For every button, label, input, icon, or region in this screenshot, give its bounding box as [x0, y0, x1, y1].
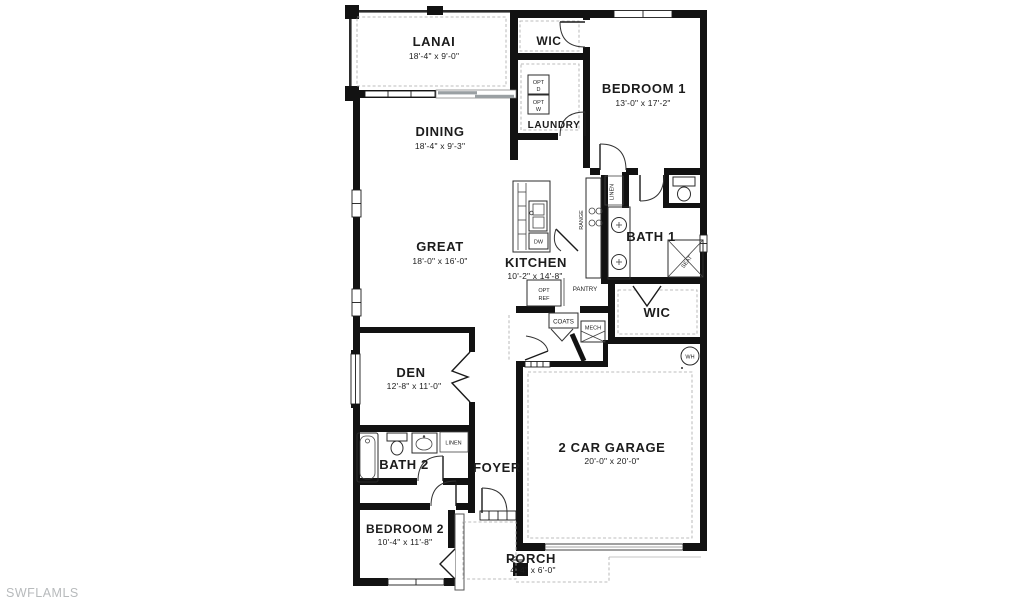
wall-segment: [516, 367, 523, 543]
room-label-lanai: LANAI: [413, 34, 456, 49]
wall-segment: [456, 503, 468, 510]
wall-segment: [448, 510, 455, 548]
coats-bifold-door: [551, 329, 573, 341]
wall-segment: [700, 10, 707, 235]
room-dims-lanai: 18'-4" x 9'-0": [409, 51, 459, 61]
room-label-bedroom2: BEDROOM 2: [366, 522, 444, 536]
wall-segment: [353, 327, 475, 333]
room-dims-bedroom2: 10'-4" x 11'-8": [378, 537, 433, 547]
garage-entry-door: [525, 336, 548, 360]
room-label-bedroom1: BEDROOM 1: [602, 81, 686, 96]
mech-box: [581, 321, 605, 342]
opt-ref-label: REF: [539, 296, 551, 302]
window: [388, 579, 444, 585]
wall-segment: [516, 306, 555, 313]
wall-segment: [700, 252, 707, 550]
room-label-bath2: BATH 2: [379, 457, 429, 472]
garage-door: [545, 544, 683, 550]
wall-segment: [353, 90, 360, 190]
wic-main-door: [633, 286, 661, 306]
room-label-great: GREAT: [416, 239, 464, 254]
room-label-wic-main: WIC: [643, 305, 670, 320]
front-door: [482, 488, 507, 513]
water-heater-label: WH: [685, 355, 694, 361]
window: [365, 91, 435, 97]
wall-segment: [583, 18, 590, 20]
wall-segment: [516, 133, 558, 140]
front-door-sill: [480, 511, 516, 520]
garage-floor-outline: [528, 372, 692, 538]
water-closet-door: [640, 175, 664, 201]
opt-ref-label: OPT: [538, 288, 550, 294]
opt-dryer-label: OPT: [533, 80, 545, 86]
den-french-doors: [452, 352, 470, 402]
opt-dryer-label: D: [537, 87, 541, 93]
room-label-foyer: FOYER: [473, 460, 521, 475]
seat-label: SEAT: [681, 255, 695, 270]
range-label: RANGE: [579, 210, 585, 230]
lanai-post: [345, 5, 359, 19]
sink-fixture-bath2: [412, 433, 437, 453]
wall-segment: [601, 175, 608, 277]
wall-segment: [516, 543, 545, 551]
room-dims-dining: 18'-4" x 9'-3": [415, 141, 465, 151]
room-dims-great: 18'-0" x 16'-0": [412, 256, 467, 266]
wall-segment: [510, 10, 614, 18]
toilet-fixture-bath2: [387, 433, 407, 455]
wall-segment: [550, 361, 608, 367]
feature-labels: OPT D OPT W DW RANGE LINEN PANTRY OPT RE…: [445, 80, 694, 447]
window: [351, 350, 360, 408]
room-label-garage: 2 CAR GARAGE: [559, 440, 666, 455]
wall-segment: [603, 340, 608, 364]
pantry-door: [554, 229, 578, 251]
dishwasher-label: DW: [534, 240, 544, 246]
linen-bath2-label: LINEN: [445, 441, 461, 447]
mech-label: MECH: [585, 326, 601, 332]
wall-segment: [353, 217, 360, 289]
range-fixture: [586, 178, 602, 278]
linen-hall-label: LINEN: [610, 184, 616, 200]
coats-label: COATS: [553, 319, 574, 326]
watermark-text: SWFLAMLS: [6, 586, 79, 600]
wall-segment: [353, 316, 360, 352]
wall-segment: [516, 53, 583, 60]
window: [352, 190, 361, 217]
wall-segment: [608, 284, 615, 344]
angled-wall-segment: [572, 334, 584, 361]
lanai-left-screen-wall: [349, 13, 352, 90]
room-label-laundry: LAUNDRY: [528, 120, 581, 131]
room-label-porch: PORCH: [506, 551, 556, 566]
wall-segment: [353, 578, 388, 586]
room-label-den: DEN: [396, 365, 425, 380]
room-dims-bedroom1: 13'-0" x 17'-2": [615, 98, 670, 108]
wall-segment: [663, 203, 707, 208]
wall-segment: [590, 168, 600, 175]
kitchen-sink-fixture: [529, 201, 547, 231]
wall-segment: [448, 580, 455, 586]
sliding-door: [436, 90, 516, 98]
toilet-fixture-bath1: [673, 177, 695, 201]
room-dims-den: 12'-8" x 11'-0": [387, 381, 442, 391]
floor-plan-drawing: LANAI 18'-4" x 9'-0" DINING 18'-4" x 9'-…: [0, 0, 1024, 603]
floor-plan-page: LANAI 18'-4" x 9'-0" DINING 18'-4" x 9'-…: [0, 0, 1024, 603]
room-label-kitchen: KITCHEN: [505, 255, 567, 270]
wall-segment: [601, 277, 707, 284]
wall-segment: [583, 47, 590, 168]
window: [614, 11, 672, 18]
kitchen-island: [513, 181, 550, 252]
wall-segment: [469, 327, 475, 352]
wall-segment: [353, 425, 475, 432]
wall-segment: [516, 361, 525, 367]
wall-segment: [580, 306, 608, 313]
room-dims-porch: 4'-4" x 6'-0": [510, 565, 555, 575]
lanai-post: [427, 6, 443, 15]
opt-washer-label: W: [536, 107, 542, 113]
pantry-label: PANTRY: [573, 286, 598, 293]
wall-segment: [664, 168, 707, 175]
opt-washer-label: OPT: [533, 100, 545, 106]
room-dims-garage: 20'-0" x 20'-0": [584, 456, 639, 466]
wall-segment: [608, 337, 707, 344]
bedroom1-door: [600, 144, 626, 170]
window: [352, 289, 361, 316]
room-labels: LANAI 18'-4" x 9'-0" DINING 18'-4" x 9'-…: [366, 34, 686, 575]
wall-segment: [353, 407, 360, 586]
wic-top-door: [560, 22, 585, 47]
wall-segment: [353, 503, 430, 510]
garage-entry-sill: [525, 362, 550, 368]
room-dims-kitchen: 10'-2" x 14'-8": [507, 271, 562, 281]
wall-segment: [683, 543, 707, 551]
room-label-bath1: BATH 1: [626, 229, 676, 244]
bedroom2-closet-door: [440, 549, 455, 579]
room-label-dining: DINING: [415, 124, 464, 139]
room-label-wic-top: WIC: [536, 34, 561, 48]
tub-fixture-bath2: [357, 433, 378, 482]
